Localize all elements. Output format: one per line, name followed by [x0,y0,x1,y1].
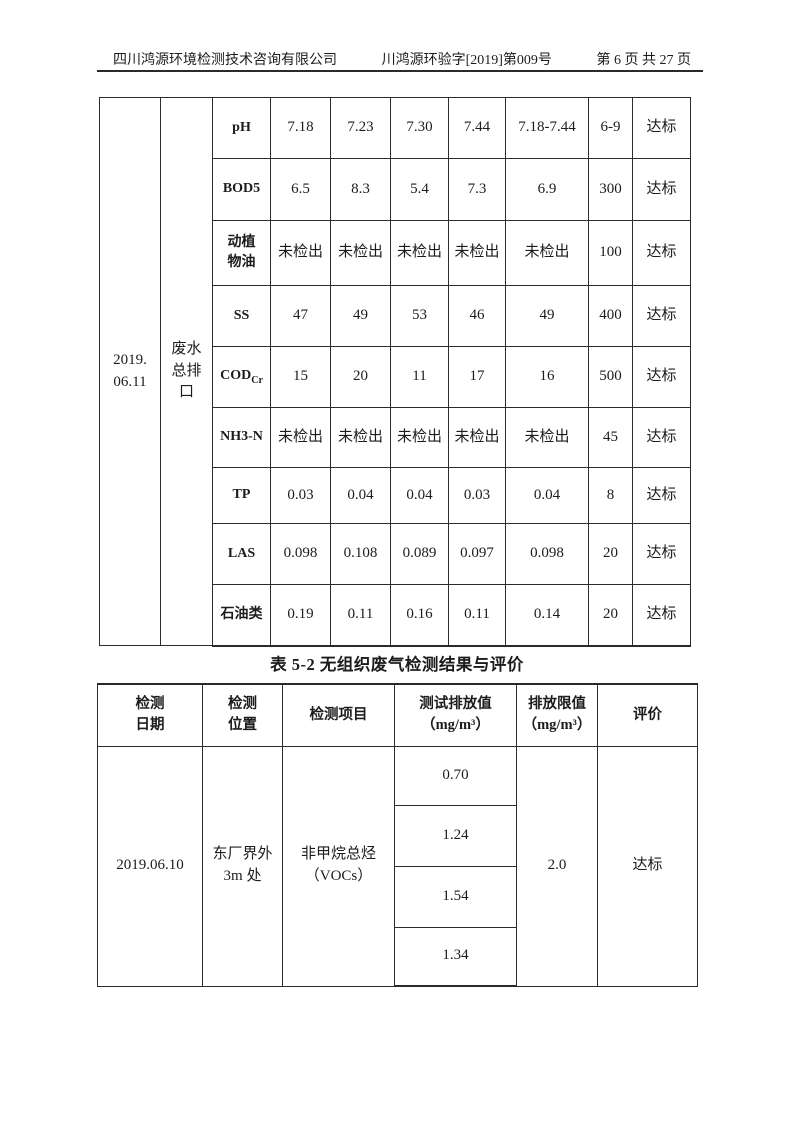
t1-value-cell: 46 [449,286,506,347]
t1-value-cell: 未检出 [449,408,506,468]
t1-value-cell: 15 [271,347,331,408]
t1-value-cell: 0.04 [391,468,449,524]
t1-limit-cell: 6-9 [589,98,633,159]
t1-value-cell: 0.03 [271,468,331,524]
t2-location-cell: 东厂界外 3m 处 [203,746,283,986]
t1-value-cell: 未检出 [391,221,449,286]
t1-value-cell: 未检出 [331,221,391,286]
t2-eval-cell: 达标 [598,746,698,986]
t1-eval-cell: 达标 [633,408,691,468]
t1-value-cell: 53 [391,286,449,347]
t1-value-cell: 0.098 [271,524,331,585]
t1-limit-cell: 300 [589,159,633,221]
t1-value-cell: 7.18 [271,98,331,159]
t1-item-cell: CODCr [213,347,271,408]
t2-date-cell: 2019.06.10 [98,746,203,986]
report-page: 四川鸿源环境检测技术咨询有限公司 川鸿源环验字[2019]第009号 第 6 页… [0,0,793,1122]
table-5-2-title: 表 5-2 无组织废气检测结果与评价 [97,651,697,675]
t2-header-row: 检测 日期 检测 位置 检测项目 测试排放值 （mg/m³） 排放限值 （mg/… [98,684,698,746]
t1-item-cell: TP [213,468,271,524]
t1-eval-cell: 达标 [633,159,691,221]
t1-value-cell: 7.44 [449,98,506,159]
t1-value-cell: 未检出 [331,408,391,468]
t1-value-cell: 20 [331,347,391,408]
t2-header-location: 检测 位置 [203,684,283,746]
t2-value-cell: 0.70 [395,746,517,805]
t1-value-cell: 0.03 [449,468,506,524]
t1-avg-cell: 0.098 [506,524,589,585]
t2-value-cell: 1.24 [395,805,517,866]
t1-item-cell: BOD5 [213,159,271,221]
t1-avg-cell: 0.04 [506,468,589,524]
t1-limit-cell: 20 [589,585,633,646]
t1-limit-cell: 45 [589,408,633,468]
t2-limit-cell: 2.0 [517,746,598,986]
t1-row-ph: 2019. 06.11 废水 总排 口 pH 7.18 7.23 7.30 7.… [100,98,691,159]
page-number-info: 第 6 页 共 27 页 [596,49,691,69]
t1-limit-cell: 500 [589,347,633,408]
t1-avg-cell: 未检出 [506,221,589,286]
t1-avg-cell: 0.14 [506,585,589,646]
t1-value-cell: 7.3 [449,159,506,221]
t1-eval-cell: 达标 [633,347,691,408]
t1-item-cell: NH3-N [213,408,271,468]
t1-avg-cell: 未检出 [506,408,589,468]
t1-eval-cell: 达标 [633,98,691,159]
page-header: 四川鸿源环境检测技术咨询有限公司 川鸿源环验字[2019]第009号 第 6 页… [99,49,691,69]
company-name: 四川鸿源环境检测技术咨询有限公司 [99,49,337,69]
t1-value-cell: 0.089 [391,524,449,585]
t1-limit-cell: 20 [589,524,633,585]
t1-value-cell: 0.108 [331,524,391,585]
document-number: 川鸿源环验字[2019]第009号 [382,49,552,69]
t1-value-cell: 0.16 [391,585,449,646]
t1-value-cell: 未检出 [271,221,331,286]
t1-value-cell: 0.11 [331,585,391,646]
t1-item-cell: pH [213,98,271,159]
t1-value-cell: 未检出 [391,408,449,468]
t2-item-cell: 非甲烷总烃 （VOCs） [283,746,395,986]
t1-value-cell: 49 [331,286,391,347]
t1-value-cell: 0.19 [271,585,331,646]
t1-value-cell: 7.23 [331,98,391,159]
t1-eval-cell: 达标 [633,286,691,347]
t1-value-cell: 11 [391,347,449,408]
t2-value-cell: 1.34 [395,927,517,986]
t1-value-cell: 17 [449,347,506,408]
t1-value-cell: 未检出 [271,408,331,468]
t1-location-cell: 废水 总排 口 [161,98,213,646]
t1-limit-cell: 400 [589,286,633,347]
t2-data-row: 2019.06.10 东厂界外 3m 处 非甲烷总烃 （VOCs） 0.70 2… [98,746,698,805]
t1-item-cell: 石油类 [213,585,271,646]
t1-value-cell: 47 [271,286,331,347]
t2-header-limit: 排放限值 （mg/m³） [517,684,598,746]
t1-eval-cell: 达标 [633,524,691,585]
cod-label: COD [220,368,251,383]
t1-value-cell: 未检出 [449,221,506,286]
t1-value-cell: 5.4 [391,159,449,221]
wastewater-results-table: 2019. 06.11 废水 总排 口 pH 7.18 7.23 7.30 7.… [99,97,691,647]
t1-avg-cell: 16 [506,347,589,408]
t1-limit-cell: 8 [589,468,633,524]
t1-avg-cell: 49 [506,286,589,347]
t1-value-cell: 0.097 [449,524,506,585]
t2-header-eval: 评价 [598,684,698,746]
t2-header-measured: 测试排放值 （mg/m³） [395,684,517,746]
t2-value-cell: 1.54 [395,866,517,927]
t2-header-date: 检测 日期 [98,684,203,746]
t1-value-cell: 6.5 [271,159,331,221]
t1-date-cell: 2019. 06.11 [100,98,161,646]
t1-avg-cell: 7.18-7.44 [506,98,589,159]
t2-header-item: 检测项目 [283,684,395,746]
fugitive-gas-table: 检测 日期 检测 位置 检测项目 测试排放值 （mg/m³） 排放限值 （mg/… [97,683,698,987]
t1-avg-cell: 6.9 [506,159,589,221]
t1-value-cell: 0.11 [449,585,506,646]
t1-limit-cell: 100 [589,221,633,286]
t1-eval-cell: 达标 [633,468,691,524]
t1-value-cell: 0.04 [331,468,391,524]
t1-item-cell: SS [213,286,271,347]
cod-subscript: Cr [251,375,263,386]
t1-value-cell: 7.30 [391,98,449,159]
t1-item-cell: 动植 物油 [213,221,271,286]
t1-eval-cell: 达标 [633,585,691,646]
header-divider [97,70,703,72]
t1-item-cell: LAS [213,524,271,585]
t1-eval-cell: 达标 [633,221,691,286]
t1-value-cell: 8.3 [331,159,391,221]
